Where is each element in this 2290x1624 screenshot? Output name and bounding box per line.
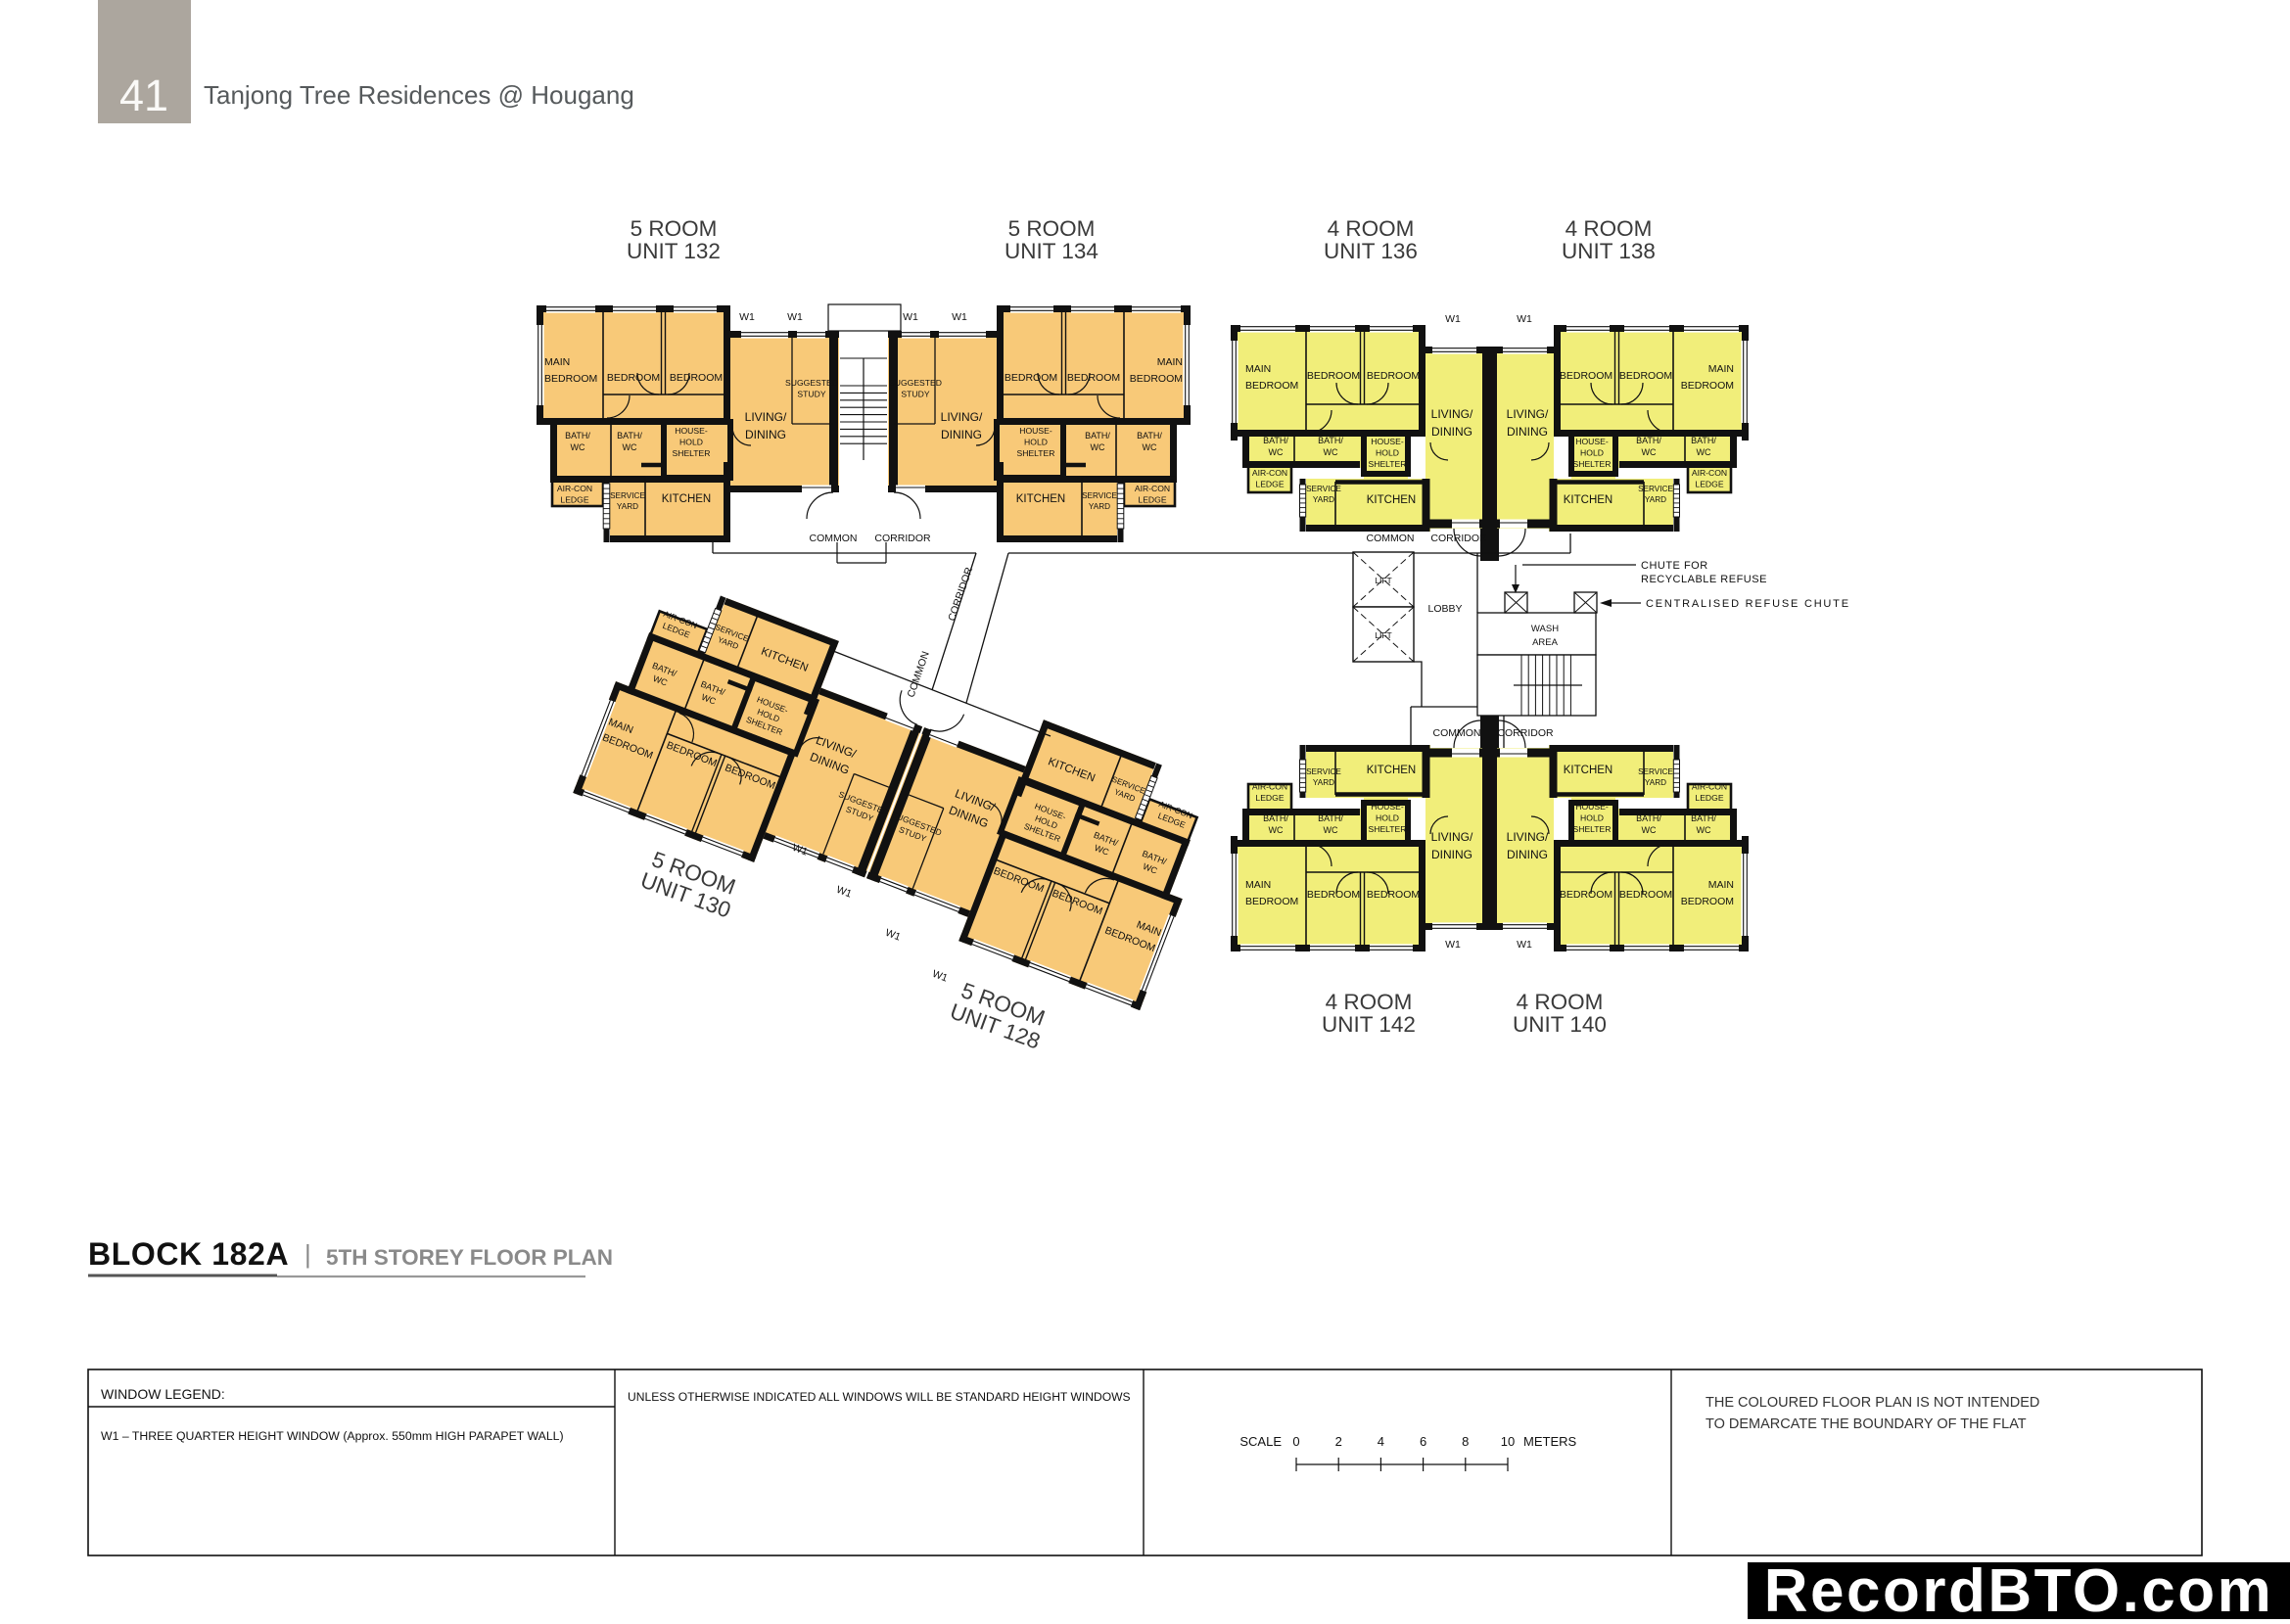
svg-text:HOUSE-: HOUSE- bbox=[1019, 426, 1052, 436]
svg-text:BATH/: BATH/ bbox=[1263, 436, 1288, 445]
svg-text:5TH STOREY FLOOR PLAN: 5TH STOREY FLOOR PLAN bbox=[326, 1245, 613, 1270]
svg-text:HOLD: HOLD bbox=[1024, 438, 1048, 447]
svg-text:BEDROOM: BEDROOM bbox=[1619, 370, 1672, 382]
svg-text:HOLD: HOLD bbox=[1580, 813, 1604, 823]
svg-text:|: | bbox=[304, 1239, 311, 1269]
svg-text:5 ROOM: 5 ROOM bbox=[631, 216, 718, 241]
svg-text:Tanjong Tree Residences @ Houg: Tanjong Tree Residences @ Hougang bbox=[204, 80, 634, 110]
svg-text:W1: W1 bbox=[1445, 313, 1461, 325]
svg-text:YARD: YARD bbox=[1645, 495, 1666, 504]
svg-text:LEDGE: LEDGE bbox=[1695, 793, 1723, 803]
svg-text:MAIN: MAIN bbox=[1708, 363, 1734, 375]
svg-text:LIVING/: LIVING/ bbox=[1431, 830, 1473, 844]
svg-text:KITCHEN: KITCHEN bbox=[1367, 765, 1416, 776]
svg-text:4 ROOM: 4 ROOM bbox=[1328, 216, 1415, 241]
svg-text:HOLD: HOLD bbox=[1580, 448, 1604, 458]
svg-text:BEDROOM: BEDROOM bbox=[1367, 370, 1420, 382]
svg-text:BATH/: BATH/ bbox=[617, 431, 642, 441]
svg-text:BLOCK 182A: BLOCK 182A bbox=[88, 1236, 289, 1272]
svg-text:MAIN: MAIN bbox=[544, 356, 570, 368]
svg-text:LIFT: LIFT bbox=[1375, 576, 1391, 585]
svg-text:UNIT 136: UNIT 136 bbox=[1324, 239, 1418, 263]
svg-text:WC: WC bbox=[1697, 447, 1711, 457]
svg-text:BEDROOM: BEDROOM bbox=[1560, 889, 1612, 901]
svg-text:SHELTER: SHELTER bbox=[1369, 459, 1407, 469]
svg-text:WC: WC bbox=[1269, 825, 1284, 835]
svg-text:WC: WC bbox=[1269, 447, 1284, 457]
svg-text:THE COLOURED FLOOR PLAN IS NOT: THE COLOURED FLOOR PLAN IS NOT INTENDED bbox=[1706, 1395, 2039, 1411]
svg-text:LIVING/: LIVING/ bbox=[745, 410, 787, 424]
svg-text:41: 41 bbox=[119, 70, 168, 120]
svg-text:UNIT 142: UNIT 142 bbox=[1322, 1012, 1416, 1037]
svg-text:WASH: WASH bbox=[1531, 624, 1559, 634]
svg-text:BEDROOM: BEDROOM bbox=[607, 372, 660, 384]
svg-text:BATH/: BATH/ bbox=[1137, 431, 1162, 441]
svg-text:YARD: YARD bbox=[1089, 502, 1110, 511]
svg-text:LIVING/: LIVING/ bbox=[941, 410, 983, 424]
svg-text:METERS: METERS bbox=[1523, 1434, 1577, 1449]
svg-text:KITCHEN: KITCHEN bbox=[1016, 493, 1065, 505]
svg-text:MAIN: MAIN bbox=[1245, 879, 1271, 891]
svg-text:10: 10 bbox=[1501, 1434, 1515, 1449]
svg-text:SERVICE: SERVICE bbox=[1082, 491, 1117, 500]
svg-text:CENTRALISED REFUSE CHUTE: CENTRALISED REFUSE CHUTE bbox=[1646, 598, 1850, 610]
svg-text:MAIN: MAIN bbox=[1708, 879, 1734, 891]
svg-text:5 ROOM: 5 ROOM bbox=[1008, 216, 1096, 241]
svg-text:LOBBY: LOBBY bbox=[1427, 603, 1462, 615]
svg-text:RECYCLABLE REFUSE: RECYCLABLE REFUSE bbox=[1641, 574, 1767, 585]
svg-text:SHELTER: SHELTER bbox=[1573, 824, 1612, 834]
svg-text:BEDROOM: BEDROOM bbox=[1367, 889, 1420, 901]
svg-text:HOUSE-: HOUSE- bbox=[675, 426, 708, 436]
svg-text:BEDROOM: BEDROOM bbox=[1130, 373, 1183, 385]
svg-text:W1: W1 bbox=[903, 311, 918, 323]
svg-text:HOUSE-: HOUSE- bbox=[1575, 437, 1609, 446]
svg-text:W1: W1 bbox=[1517, 939, 1532, 951]
svg-text:CHUTE FOR: CHUTE FOR bbox=[1641, 560, 1708, 572]
svg-text:AREA: AREA bbox=[1532, 637, 1559, 648]
svg-text:SERVICE: SERVICE bbox=[1306, 767, 1341, 776]
svg-text:BEDROOM: BEDROOM bbox=[1307, 889, 1360, 901]
svg-text:LIVING/: LIVING/ bbox=[1431, 407, 1473, 421]
svg-text:HOUSE-: HOUSE- bbox=[1575, 802, 1609, 812]
svg-text:SUGGESTED: SUGGESTED bbox=[889, 378, 942, 388]
svg-text:AIR-CON: AIR-CON bbox=[1135, 484, 1170, 493]
svg-text:WC: WC bbox=[1143, 442, 1157, 452]
svg-text:DINING: DINING bbox=[1431, 425, 1472, 439]
svg-text:STUDY: STUDY bbox=[901, 390, 929, 399]
svg-text:CORRIDOR: CORRIDOR bbox=[1430, 533, 1487, 544]
svg-text:YARD: YARD bbox=[1313, 495, 1334, 504]
svg-text:LEDGE: LEDGE bbox=[560, 495, 588, 505]
svg-text:WC: WC bbox=[1091, 442, 1105, 452]
svg-text:BEDROOM: BEDROOM bbox=[1067, 372, 1120, 384]
svg-text:SERVICE: SERVICE bbox=[1638, 767, 1673, 776]
svg-text:BATH/: BATH/ bbox=[1318, 813, 1343, 823]
svg-text:CORRIDOR: CORRIDOR bbox=[874, 533, 931, 544]
svg-text:BATH/: BATH/ bbox=[1636, 436, 1661, 445]
svg-text:SUGGESTED: SUGGESTED bbox=[785, 378, 838, 388]
svg-text:0: 0 bbox=[1292, 1434, 1299, 1449]
svg-text:BATH/: BATH/ bbox=[565, 431, 590, 441]
svg-text:TO DEMARCATE THE BOUNDARY OF T: TO DEMARCATE THE BOUNDARY OF THE FLAT bbox=[1706, 1416, 2027, 1432]
svg-text:BEDROOM: BEDROOM bbox=[1245, 896, 1298, 907]
svg-text:LEDGE: LEDGE bbox=[1255, 480, 1284, 489]
svg-text:8: 8 bbox=[1462, 1434, 1469, 1449]
svg-text:SHELTER: SHELTER bbox=[1017, 448, 1055, 458]
svg-text:W1: W1 bbox=[787, 311, 803, 323]
svg-text:BEDROOM: BEDROOM bbox=[670, 372, 723, 384]
svg-text:KITCHEN: KITCHEN bbox=[1367, 494, 1416, 506]
svg-text:2: 2 bbox=[1335, 1434, 1342, 1449]
svg-text:DINING: DINING bbox=[745, 428, 786, 441]
svg-text:MAIN: MAIN bbox=[1245, 363, 1271, 375]
svg-text:UNIT 132: UNIT 132 bbox=[627, 239, 721, 263]
svg-text:DINING: DINING bbox=[941, 428, 982, 441]
svg-text:BEDROOM: BEDROOM bbox=[1681, 896, 1734, 907]
svg-text:WC: WC bbox=[1642, 447, 1657, 457]
svg-text:CORRIDOR: CORRIDOR bbox=[1497, 727, 1554, 739]
svg-text:UNLESS OTHERWISE INDICATED: UNLESS OTHERWISE INDICATED ALL WINDOWS W… bbox=[628, 1390, 1131, 1404]
svg-text:LIFT: LIFT bbox=[1375, 630, 1391, 640]
svg-text:LIVING/: LIVING/ bbox=[1507, 407, 1549, 421]
svg-text:HOLD: HOLD bbox=[1376, 448, 1399, 458]
svg-text:UNIT 134: UNIT 134 bbox=[1005, 239, 1098, 263]
svg-text:LEDGE: LEDGE bbox=[1695, 480, 1723, 489]
svg-text:4 ROOM: 4 ROOM bbox=[1326, 990, 1413, 1014]
svg-text:YARD: YARD bbox=[1313, 778, 1334, 787]
svg-text:SCALE: SCALE bbox=[1239, 1434, 1282, 1449]
svg-text:SHELTER: SHELTER bbox=[1369, 824, 1407, 834]
svg-text:LEDGE: LEDGE bbox=[1255, 793, 1284, 803]
svg-text:6: 6 bbox=[1420, 1434, 1426, 1449]
svg-text:AIR-CON: AIR-CON bbox=[1252, 468, 1287, 478]
svg-text:BEDROOM: BEDROOM bbox=[1307, 370, 1360, 382]
svg-text:DINING: DINING bbox=[1431, 848, 1472, 861]
svg-text:4 ROOM: 4 ROOM bbox=[1566, 216, 1653, 241]
svg-text:AIR-CON: AIR-CON bbox=[1252, 782, 1287, 792]
svg-text:AIR-CON: AIR-CON bbox=[557, 484, 592, 493]
svg-text:BATH/: BATH/ bbox=[1691, 813, 1716, 823]
svg-text:UNIT 138: UNIT 138 bbox=[1562, 239, 1656, 263]
svg-text:4: 4 bbox=[1378, 1434, 1384, 1449]
svg-text:AIR-CON: AIR-CON bbox=[1692, 468, 1727, 478]
svg-text:KITCHEN: KITCHEN bbox=[662, 493, 711, 505]
svg-text:STUDY: STUDY bbox=[797, 390, 825, 399]
svg-text:BEDROOM: BEDROOM bbox=[1681, 380, 1734, 392]
svg-text:WC: WC bbox=[1324, 447, 1338, 457]
svg-text:HOUSE-: HOUSE- bbox=[1371, 437, 1404, 446]
svg-text:BATH/: BATH/ bbox=[1318, 436, 1343, 445]
svg-text:KITCHEN: KITCHEN bbox=[1564, 494, 1612, 506]
svg-text:SERVICE: SERVICE bbox=[610, 491, 645, 500]
svg-text:WINDOW LEGEND:: WINDOW LEGEND: bbox=[101, 1386, 225, 1402]
svg-text:KITCHEN: KITCHEN bbox=[1564, 765, 1612, 776]
svg-text:HOLD: HOLD bbox=[679, 438, 703, 447]
svg-text:BEDROOM: BEDROOM bbox=[1560, 370, 1612, 382]
svg-text:WC: WC bbox=[623, 442, 637, 452]
svg-text:WC: WC bbox=[1642, 825, 1657, 835]
svg-text:COMMON: COMMON bbox=[1367, 533, 1415, 544]
svg-text:WC: WC bbox=[1697, 825, 1711, 835]
svg-text:BEDROOM: BEDROOM bbox=[1005, 372, 1057, 384]
svg-text:W1: W1 bbox=[1517, 313, 1532, 325]
svg-text:W1: W1 bbox=[1445, 939, 1461, 951]
svg-text:RecordBTO.com: RecordBTO.com bbox=[1764, 1557, 2274, 1619]
svg-text:BEDROOM: BEDROOM bbox=[1619, 889, 1672, 901]
svg-text:SHELTER: SHELTER bbox=[1573, 459, 1612, 469]
svg-text:HOUSE-: HOUSE- bbox=[1371, 802, 1404, 812]
svg-text:YARD: YARD bbox=[1645, 778, 1666, 787]
svg-text:LEDGE: LEDGE bbox=[1138, 495, 1166, 505]
svg-text:SERVICE: SERVICE bbox=[1306, 485, 1341, 493]
svg-text:HOLD: HOLD bbox=[1376, 813, 1399, 823]
svg-text:BATH/: BATH/ bbox=[1085, 431, 1110, 441]
svg-text:4 ROOM: 4 ROOM bbox=[1517, 990, 1604, 1014]
svg-text:W1: W1 bbox=[739, 311, 755, 323]
svg-text:UNIT 140: UNIT 140 bbox=[1513, 1012, 1607, 1037]
svg-text:W1 – THREE QUARTER HEIGHT: W1 – THREE QUARTER HEIGHT WINDOW (Approx… bbox=[101, 1429, 564, 1443]
svg-text:WC: WC bbox=[1324, 825, 1338, 835]
svg-text:AIR-CON: AIR-CON bbox=[1692, 782, 1727, 792]
svg-text:BATH/: BATH/ bbox=[1691, 436, 1716, 445]
svg-text:MAIN: MAIN bbox=[1157, 356, 1183, 368]
svg-text:SERVICE: SERVICE bbox=[1638, 485, 1673, 493]
svg-text:SHELTER: SHELTER bbox=[673, 448, 711, 458]
svg-text:DINING: DINING bbox=[1507, 425, 1548, 439]
svg-text:LIVING/: LIVING/ bbox=[1507, 830, 1549, 844]
svg-text:COMMON: COMMON bbox=[1433, 727, 1481, 739]
svg-text:YARD: YARD bbox=[617, 502, 638, 511]
svg-text:BEDROOM: BEDROOM bbox=[1245, 380, 1298, 392]
svg-text:BATH/: BATH/ bbox=[1263, 813, 1288, 823]
svg-text:BEDROOM: BEDROOM bbox=[544, 373, 597, 385]
svg-text:WC: WC bbox=[571, 442, 585, 452]
svg-text:COMMON: COMMON bbox=[810, 533, 858, 544]
svg-text:DINING: DINING bbox=[1507, 848, 1548, 861]
svg-text:BATH/: BATH/ bbox=[1636, 813, 1661, 823]
svg-text:W1: W1 bbox=[952, 311, 967, 323]
